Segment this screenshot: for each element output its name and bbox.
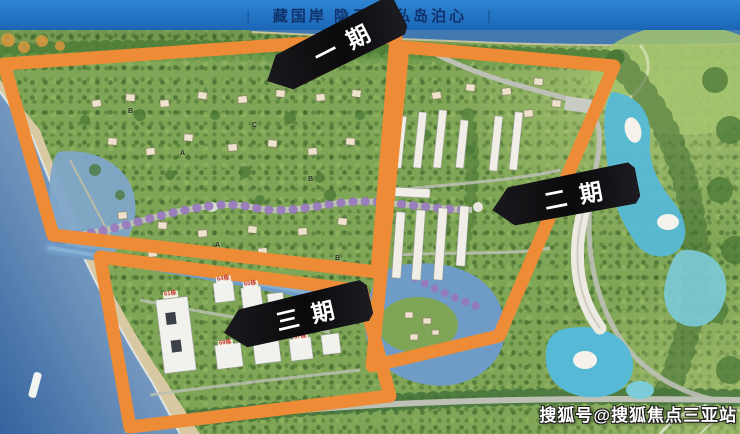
villa-letter: A <box>180 150 185 157</box>
site-plan-screenshot: 61栋 64栋 65栋 69栋 68栋 67栋 B A C B A B | 藏国… <box>0 0 740 434</box>
watermark-text: 搜狐号@搜狐焦点三亚站 <box>539 401 737 426</box>
villa-letter: B <box>335 255 340 262</box>
villa-letter: B <box>128 108 133 115</box>
villa-letter: A <box>215 242 220 249</box>
site-plan-map <box>0 0 740 434</box>
header-separator-left: | <box>246 7 253 23</box>
villa-letter: C <box>252 122 257 129</box>
header-separator-right: | <box>487 7 494 23</box>
villa-letter: B <box>308 176 313 183</box>
